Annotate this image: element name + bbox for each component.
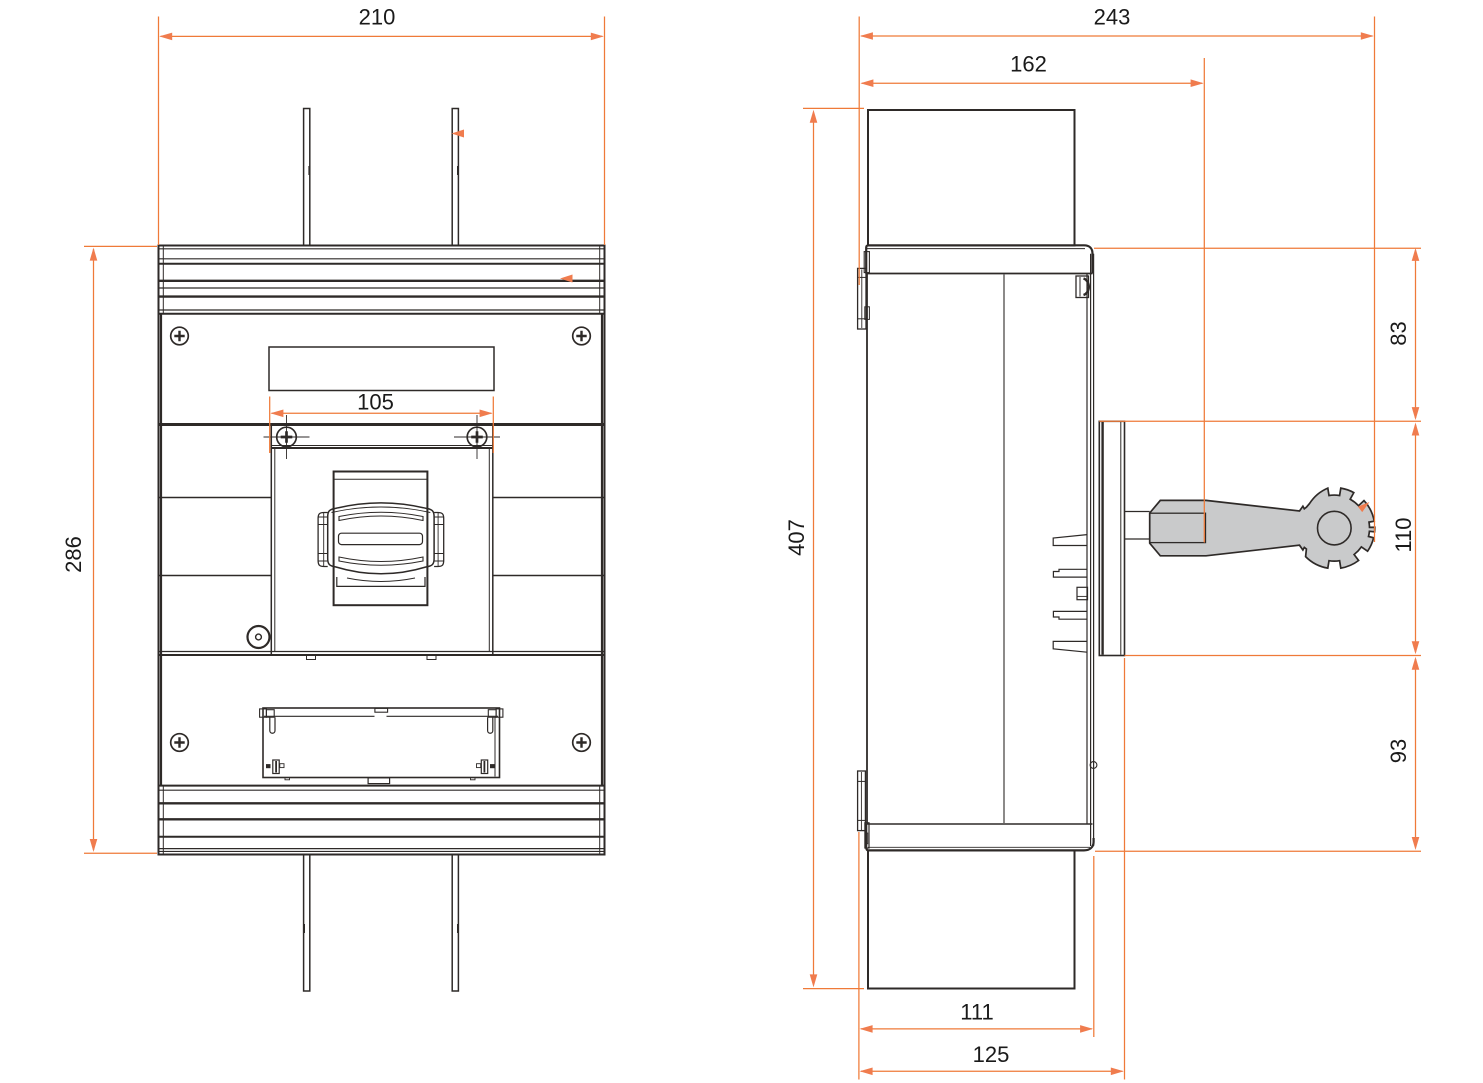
svg-text:286: 286 (61, 536, 86, 573)
svg-text:125: 125 (973, 1042, 1010, 1067)
svg-text:407: 407 (784, 519, 809, 556)
svg-text:105: 105 (357, 390, 394, 415)
svg-text:93: 93 (1386, 739, 1411, 763)
svg-text:243: 243 (1094, 4, 1131, 29)
svg-text:162: 162 (1010, 52, 1047, 77)
svg-text:83: 83 (1386, 321, 1411, 345)
svg-text:110: 110 (1391, 517, 1416, 552)
svg-text:210: 210 (359, 5, 396, 30)
svg-text:111: 111 (960, 999, 993, 1024)
